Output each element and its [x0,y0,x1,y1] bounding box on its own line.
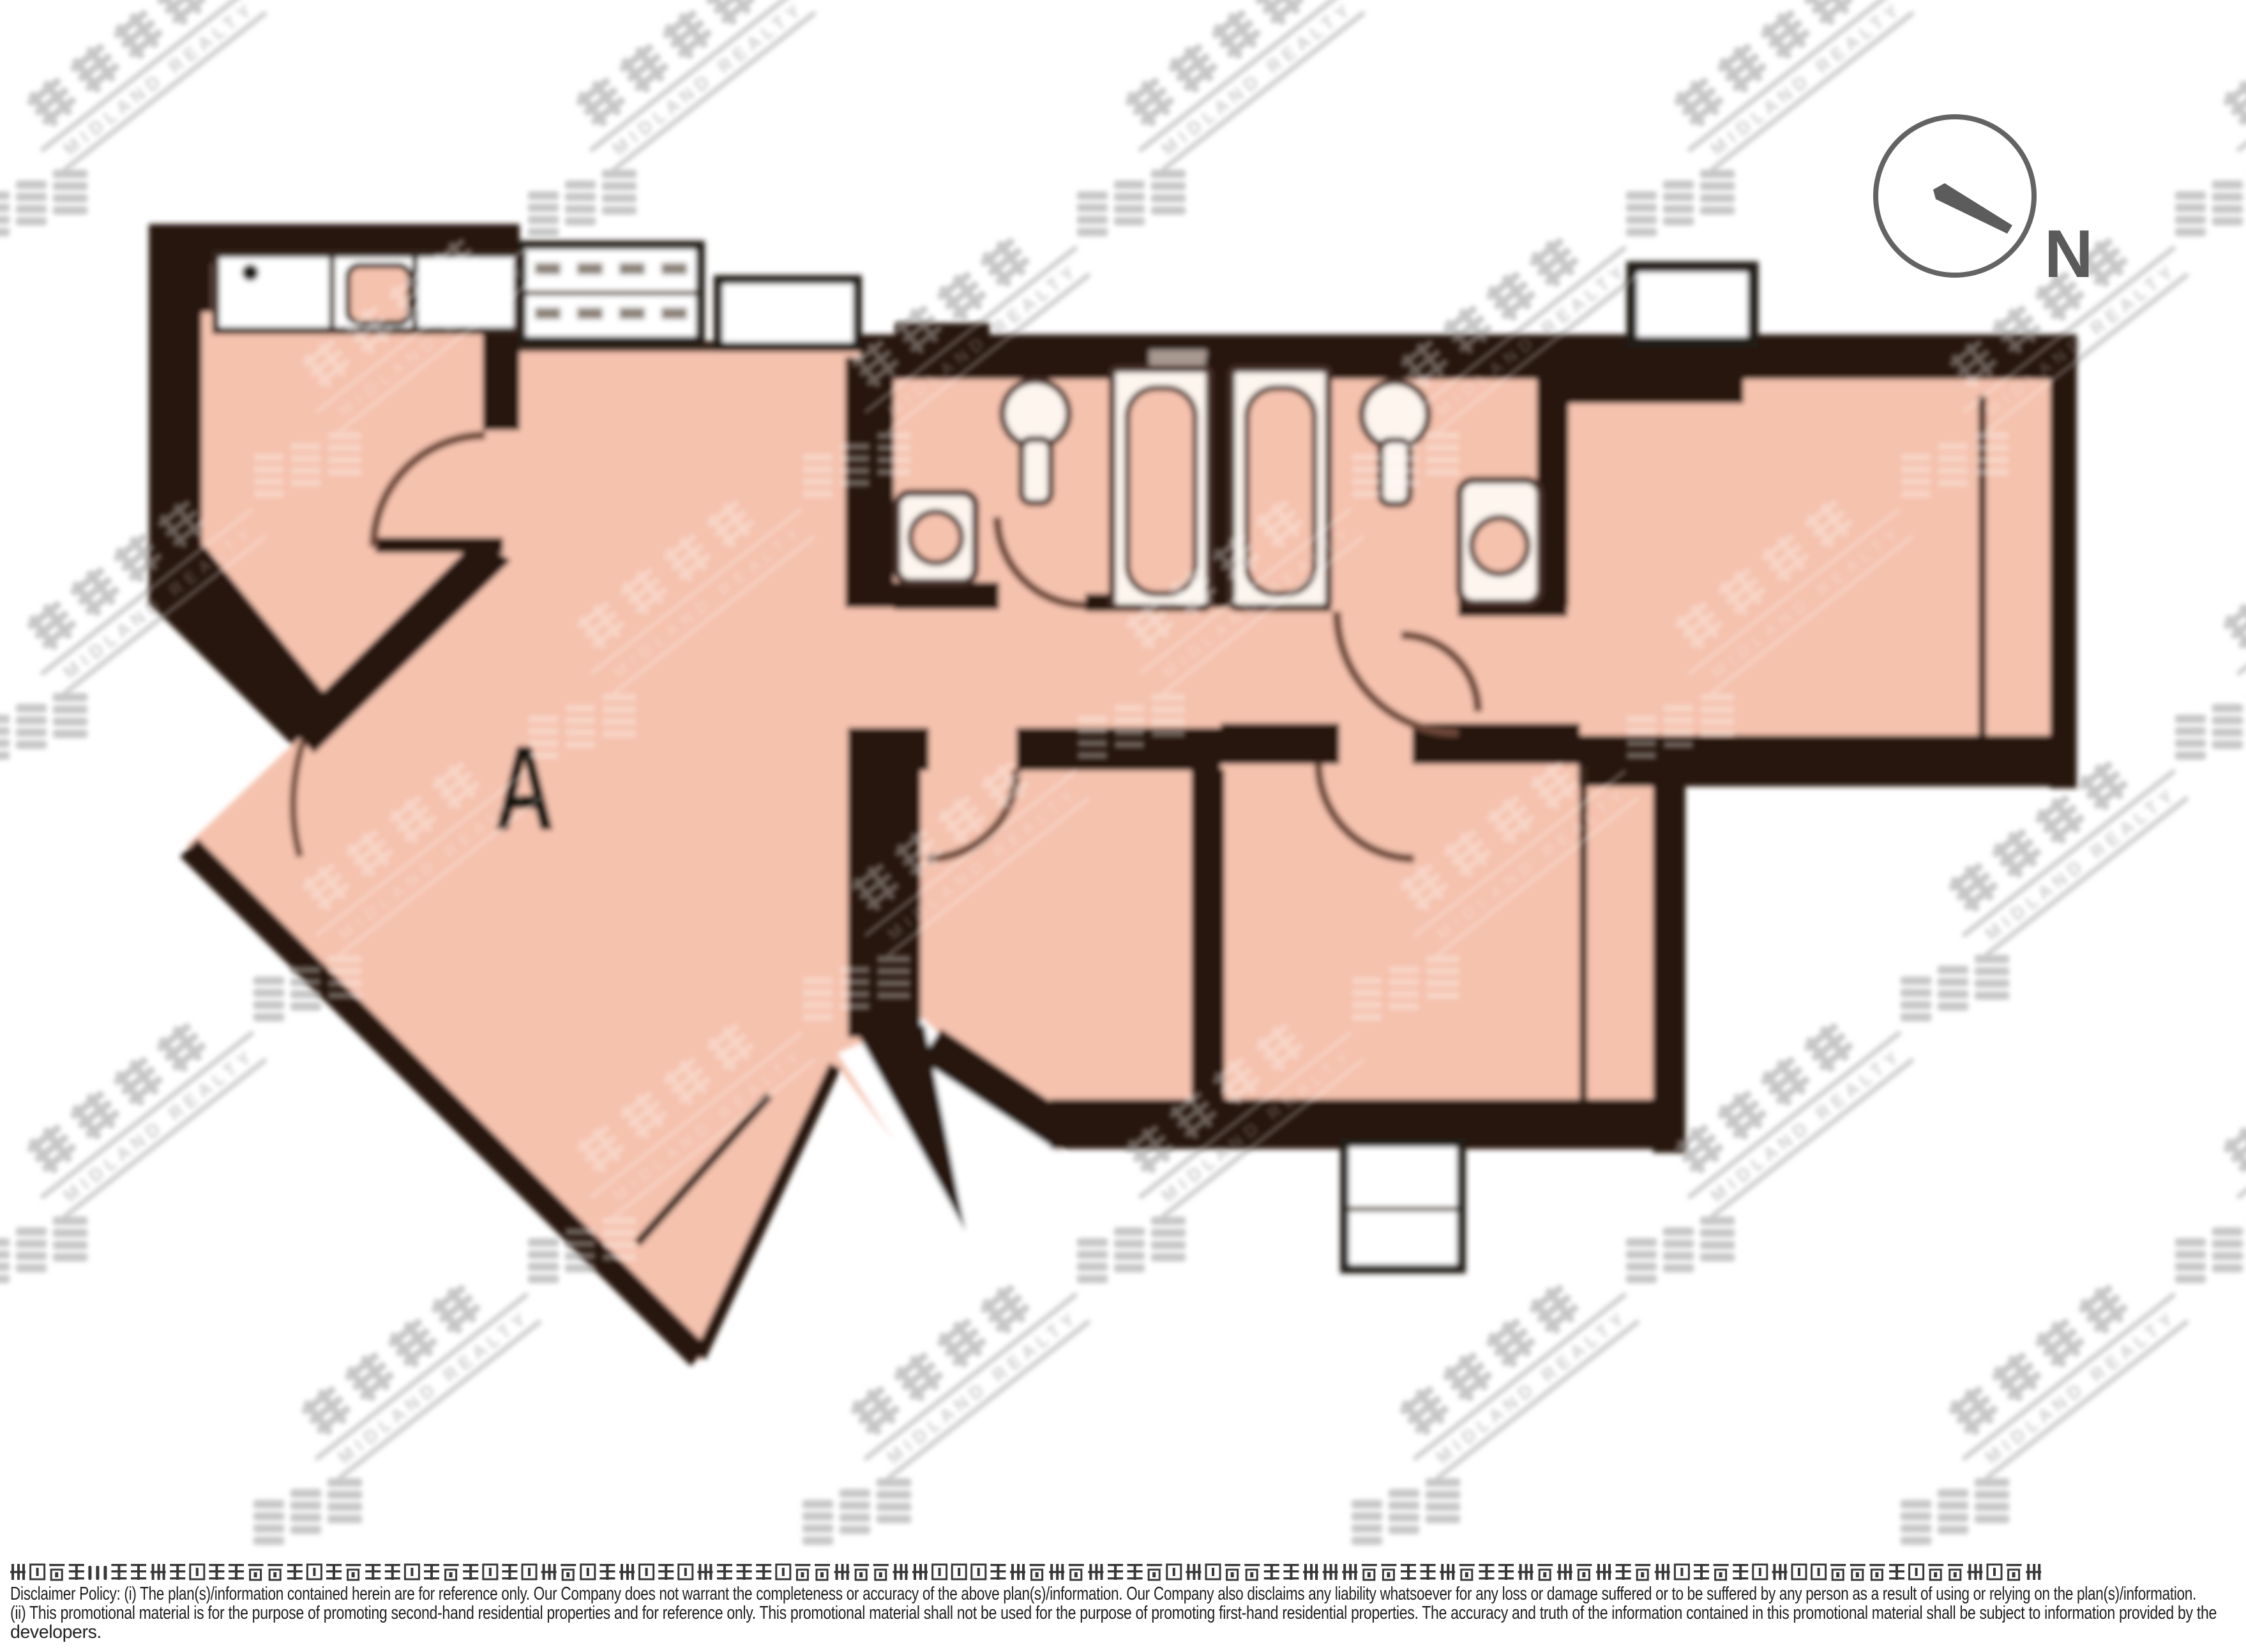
svg-text:N: N [2044,216,2093,292]
svg-text:developers.: developers. [10,1622,102,1642]
svg-text:(ii) This promotional material: (ii) This promotional material is for th… [10,1603,2217,1623]
svg-text:Disclaimer Policy: (i) The pla: Disclaimer Policy: (i) The plan(s)/infor… [10,1584,2196,1604]
